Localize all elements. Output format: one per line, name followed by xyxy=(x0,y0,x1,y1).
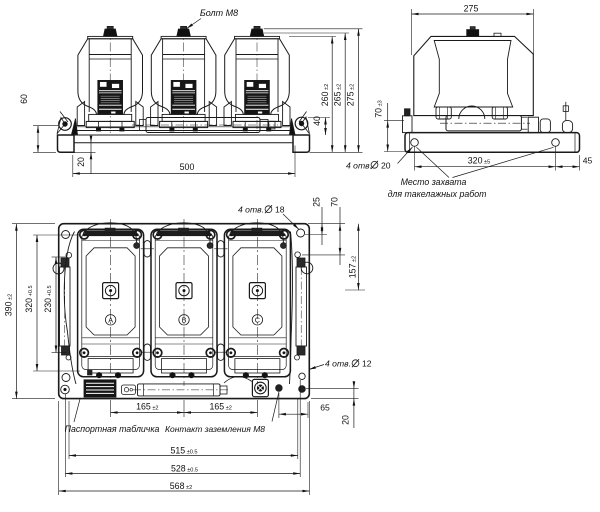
svg-text:4 отв.: 4 отв. xyxy=(346,160,372,170)
svg-text:45: 45 xyxy=(583,156,593,166)
svg-text:20: 20 xyxy=(381,160,391,170)
svg-text:60: 60 xyxy=(19,94,29,104)
svg-text:Болт М8: Болт М8 xyxy=(200,8,238,18)
svg-text:Паспортная табличка: Паспортная табличка xyxy=(65,424,160,434)
svg-text:12: 12 xyxy=(362,359,372,369)
svg-text:500: 500 xyxy=(180,162,195,172)
svg-text:25: 25 xyxy=(311,197,321,207)
svg-text:для такелажных работ: для такелажных работ xyxy=(388,189,487,199)
svg-text:20: 20 xyxy=(341,415,351,425)
svg-text:Контакт заземления М8: Контакт заземления М8 xyxy=(165,424,265,434)
svg-text:4 отв.: 4 отв. xyxy=(238,205,264,215)
svg-text:18: 18 xyxy=(275,205,285,215)
svg-text:Место захвата: Место захвата xyxy=(401,177,467,187)
svg-text:275: 275 xyxy=(464,3,479,13)
svg-text:4 отв.: 4 отв. xyxy=(325,359,351,369)
svg-text:65: 65 xyxy=(320,403,330,413)
svg-text:70: 70 xyxy=(329,197,339,207)
svg-text:20: 20 xyxy=(76,157,86,167)
svg-text:40: 40 xyxy=(312,116,322,126)
